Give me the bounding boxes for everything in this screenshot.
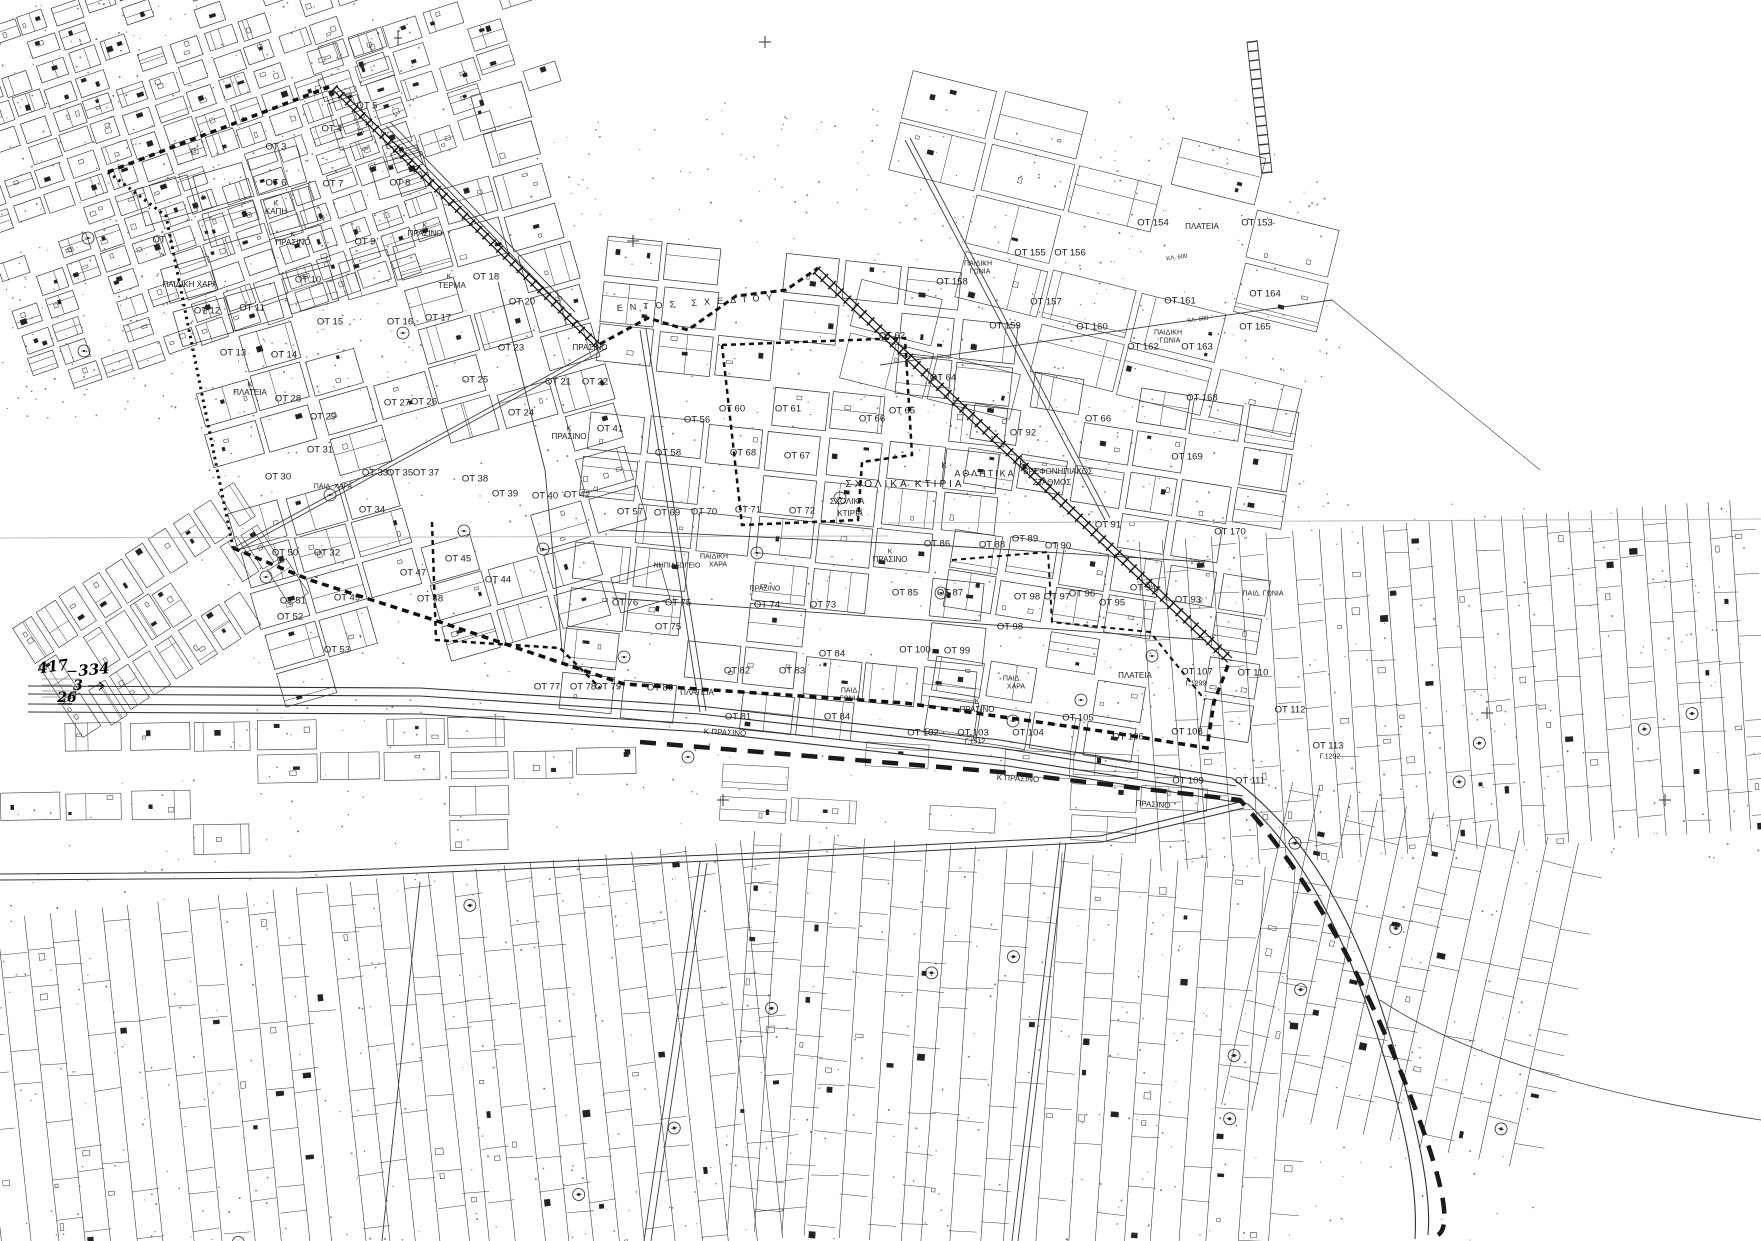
- scan-noise: [201, 100, 1250, 758]
- scan-noise: [3, 760, 1549, 1241]
- cadastral-map-sheet: ΟΤ 5ΟΤ 4ΟΤ 3ΟΤ 6ΟΤ 7ΟΤ 8ΚΚΑΠΗΟΤ 1ΚΠΡΑΣΙΝ…: [0, 0, 1761, 1241]
- strips-right-mid: [1138, 499, 1761, 872]
- scan-noise: [1104, 501, 1759, 860]
- strips-bottom-left: [0, 838, 809, 1241]
- settlement-boundary-dashed: [108, 85, 1230, 748]
- bottom-sheet-road: [0, 802, 1244, 880]
- hatched-boundary-avenues: [333, 86, 1233, 662]
- strips-bottom-mid: [727, 831, 1323, 1241]
- blocks-midband2: [719, 734, 1209, 847]
- blocks-mid: [557, 234, 1023, 754]
- blocks-midband: [0, 713, 637, 858]
- scan-noise: [861, 125, 1340, 520]
- blocks-leftstrips: [11, 481, 310, 742]
- blocks-west: [134, 78, 672, 709]
- map-canvas: [0, 0, 1761, 1241]
- strips-bottom-right: [1222, 782, 1608, 1172]
- blocks-topleft: [0, 0, 458, 403]
- generated-parcel-texture: [0, 0, 1761, 1241]
